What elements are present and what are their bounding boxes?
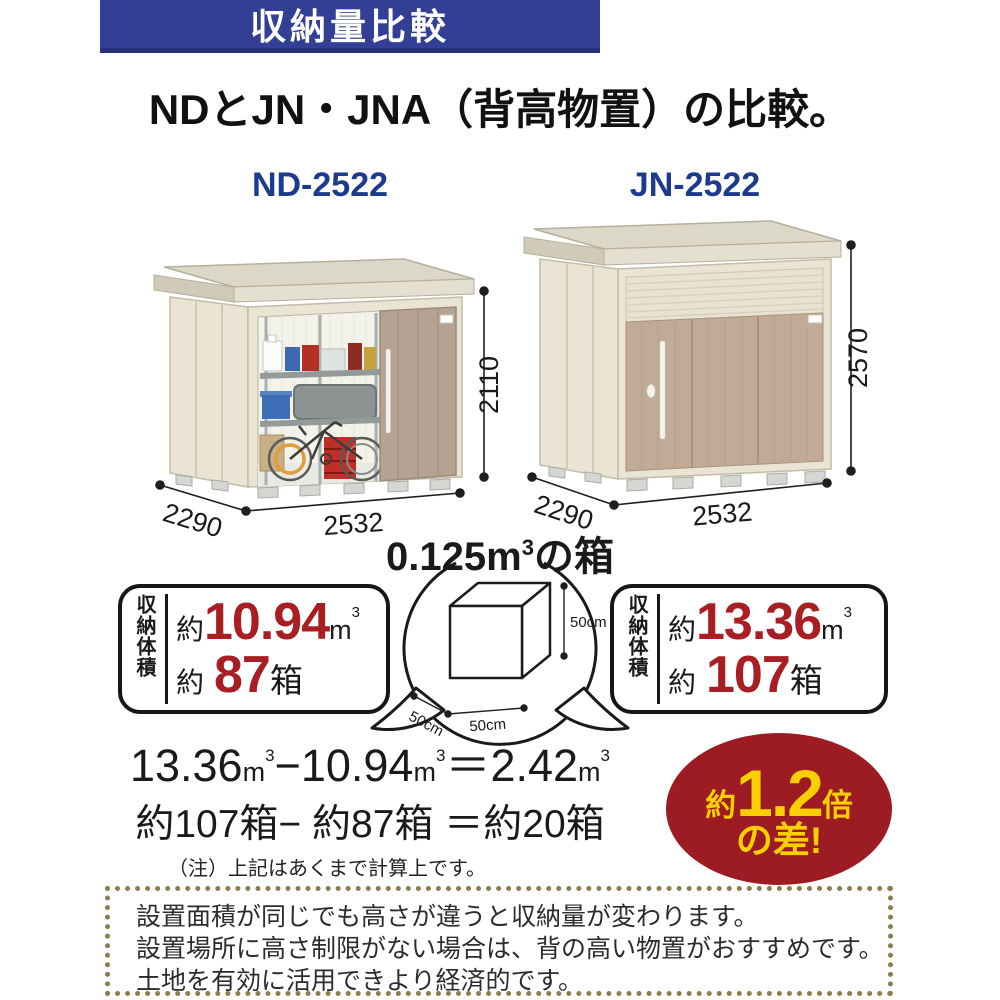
reference-box-title: 0.125m3の箱 (330, 524, 670, 582)
calculation-line-boxes: 約107箱− 約87箱 ＝約20箱 (88, 793, 652, 849)
dimension-depth-label: 2290 (160, 497, 226, 543)
shed-door (380, 307, 456, 481)
divider (657, 594, 660, 704)
shed-roof (524, 221, 841, 265)
shed-illustration-nd: 2110 2290 2532 (130, 235, 510, 550)
door-handle (660, 341, 665, 439)
brand-tag (440, 315, 453, 323)
capacity-boxes-row: 約107箱 (668, 649, 874, 702)
shed-side-wall (540, 259, 618, 479)
brand-tag (808, 315, 822, 323)
dimension-width-label: 2532 (691, 496, 753, 531)
door-handle (386, 349, 391, 433)
notice-line: 土地を有効に活用できより経済的です。 (136, 965, 888, 997)
page-title: NDとJN・JNA（背高物置）の比較。 (0, 76, 1000, 137)
notice-line: 設置面積が同じでも高さが違うと収納量が変わります。 (136, 901, 888, 933)
capacity-volume-row: 約13.36m3 (668, 596, 874, 649)
banner-title: 収納量比較 (250, 0, 450, 50)
comparison-sheet: 収納量比較 NDとJN・JNA（背高物置）の比較。 ND-2522 JN-252… (0, 0, 1000, 1000)
dimension-height-label: 2110 (474, 356, 504, 414)
difference-badge: 約1.2倍 の差! (666, 733, 892, 885)
capacity-volume-row: 約10.94m3 (176, 596, 376, 649)
model-label-jn: JN-2522 (505, 166, 885, 205)
calculation-note: （注）上記はあくまで計算上です。 (168, 852, 486, 881)
badge-line2: の差! (736, 822, 822, 859)
shed-side-wall (170, 297, 248, 487)
notice-box: 設置面積が同じでも高さが違うと収納量が変わります。 設置場所に高さ制限がない場合… (105, 886, 893, 996)
cube-height-label: 50cm (570, 614, 607, 631)
model-label-nd: ND-2522 (130, 166, 510, 205)
calculation-block: 13.36m3−10.94m3＝2.42m3 約107箱− 約87箱 ＝約20箱 (88, 742, 652, 849)
section-banner: 収納量比較 (100, 0, 600, 53)
capacity-box-nd: 収納体積 約10.94m3 約87箱 (118, 584, 390, 714)
badge-line1: 約1.2倍 (705, 760, 853, 826)
capacity-box-jn: 収納体積 約13.36m3 約107箱 (610, 584, 888, 714)
notice-line: 設置場所に高さ制限がない場合は、背の高い物置がおすすめです。 (136, 933, 888, 965)
capacity-label: 収納体積 (130, 592, 163, 706)
door-lock (647, 384, 656, 398)
cube-drawing (450, 583, 550, 678)
capacity-label: 収納体積 (622, 592, 655, 706)
shed-illustration-jn: 2570 2290 2532 (505, 215, 885, 550)
dimension-height-label: 2570 (843, 328, 873, 388)
capacity-boxes-row: 約87箱 (176, 649, 376, 702)
shed-door (626, 313, 823, 471)
divider (165, 594, 168, 704)
shed-roof (154, 259, 474, 302)
cube-width-label: 50cm (469, 716, 507, 736)
